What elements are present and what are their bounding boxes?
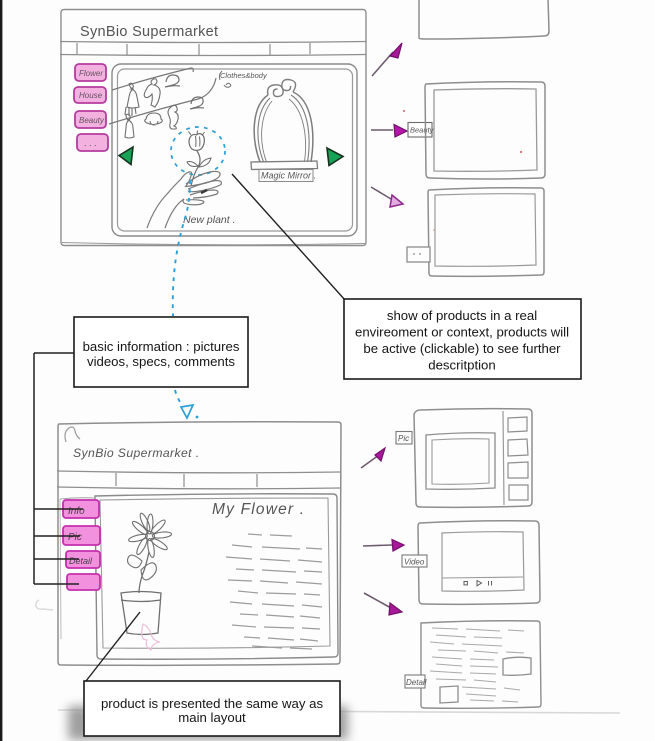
- svg-text:Video: Video: [404, 558, 425, 567]
- svg-text:Magic Mirror .: Magic Mirror .: [261, 171, 316, 181]
- svg-text:Info: Info: [68, 506, 85, 517]
- svg-text:Pic: Pic: [68, 532, 82, 543]
- svg-text:Clothes&body: Clothes&body: [220, 71, 268, 80]
- svg-text:House: House: [79, 91, 103, 100]
- svg-text:. . .: . . .: [84, 138, 97, 148]
- svg-text:My Flower .: My Flower .: [212, 501, 305, 518]
- svg-text:product is presented the same: product is presented the same way as: [101, 696, 324, 711]
- svg-text:SynBio Supermarket .: SynBio Supermarket .: [73, 446, 200, 460]
- svg-text:be active (clickable) to see f: be active (clickable) to see further: [363, 341, 561, 356]
- svg-text:SynBio Supermarket: SynBio Supermarket: [80, 24, 218, 40]
- svg-text:Beauty: Beauty: [79, 116, 105, 125]
- svg-text:New plant .: New plant .: [183, 214, 236, 226]
- svg-text:envireoment or context, produc: envireoment or context, products will: [355, 325, 569, 340]
- svg-text:Detail: Detail: [69, 556, 93, 566]
- svg-text:videos, specs, comments: videos, specs, comments: [87, 354, 235, 369]
- svg-text:Flower: Flower: [79, 69, 103, 78]
- svg-text:Pic: Pic: [398, 434, 409, 443]
- svg-text:basic information : pictures: basic information : pictures: [83, 339, 240, 354]
- svg-text:Detail: Detail: [406, 678, 427, 687]
- svg-text:descritption: descritption: [428, 358, 495, 373]
- svg-text:main layout: main layout: [178, 710, 246, 725]
- svg-text:Beauty: Beauty: [410, 126, 435, 135]
- svg-text:show of products in a real: show of products in a real: [387, 308, 537, 323]
